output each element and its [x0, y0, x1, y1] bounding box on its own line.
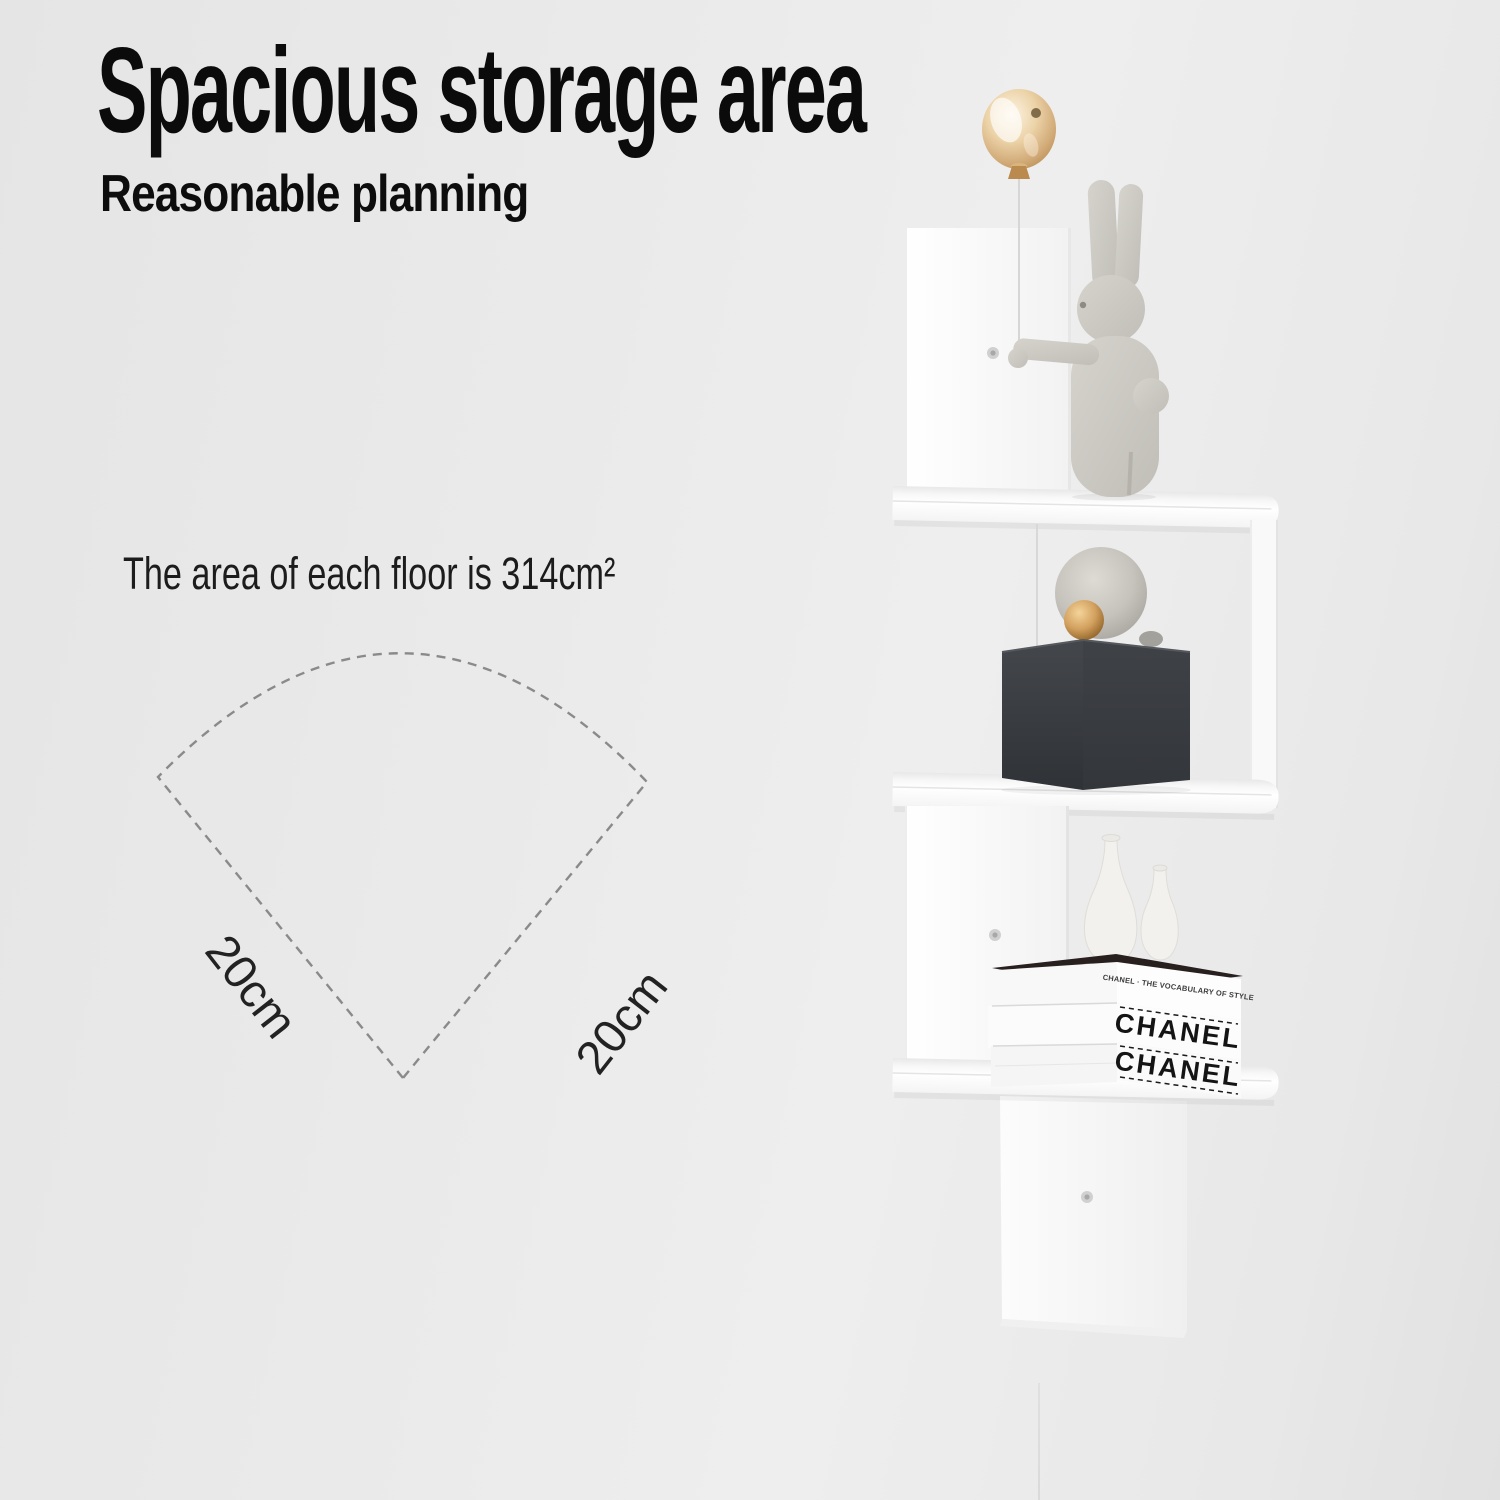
bunny-eye — [1080, 302, 1086, 308]
small-gray-disc — [1139, 631, 1163, 647]
shelf-tier-1 — [892, 486, 1279, 534]
vase-large — [1084, 835, 1136, 964]
fan-diagram — [0, 0, 800, 1200]
shelf-side-panel-right — [1250, 520, 1278, 808]
product-infographic: Spacious storage area Reasonable plannin… — [0, 0, 1500, 1500]
screw-cap-dot — [987, 347, 999, 359]
gold-ball — [1064, 600, 1104, 640]
decor-cube — [1002, 640, 1190, 790]
screw-cap-dot — [1081, 1191, 1093, 1203]
fan-sector-outline — [158, 653, 647, 1078]
balloon — [982, 89, 1056, 179]
screw-cap-dot — [989, 929, 1001, 941]
corner-shelf-photo: CHANEL · THE VOCABULARY OF STYLE CHANEL … — [850, 50, 1330, 1400]
vase-small — [1141, 865, 1178, 960]
shelf-panel-bottom — [1000, 1096, 1187, 1338]
wall-corner-line — [1038, 1383, 1040, 1500]
books-stack: CHANEL · THE VOCABULARY OF STYLE CHANEL … — [988, 954, 1255, 1098]
